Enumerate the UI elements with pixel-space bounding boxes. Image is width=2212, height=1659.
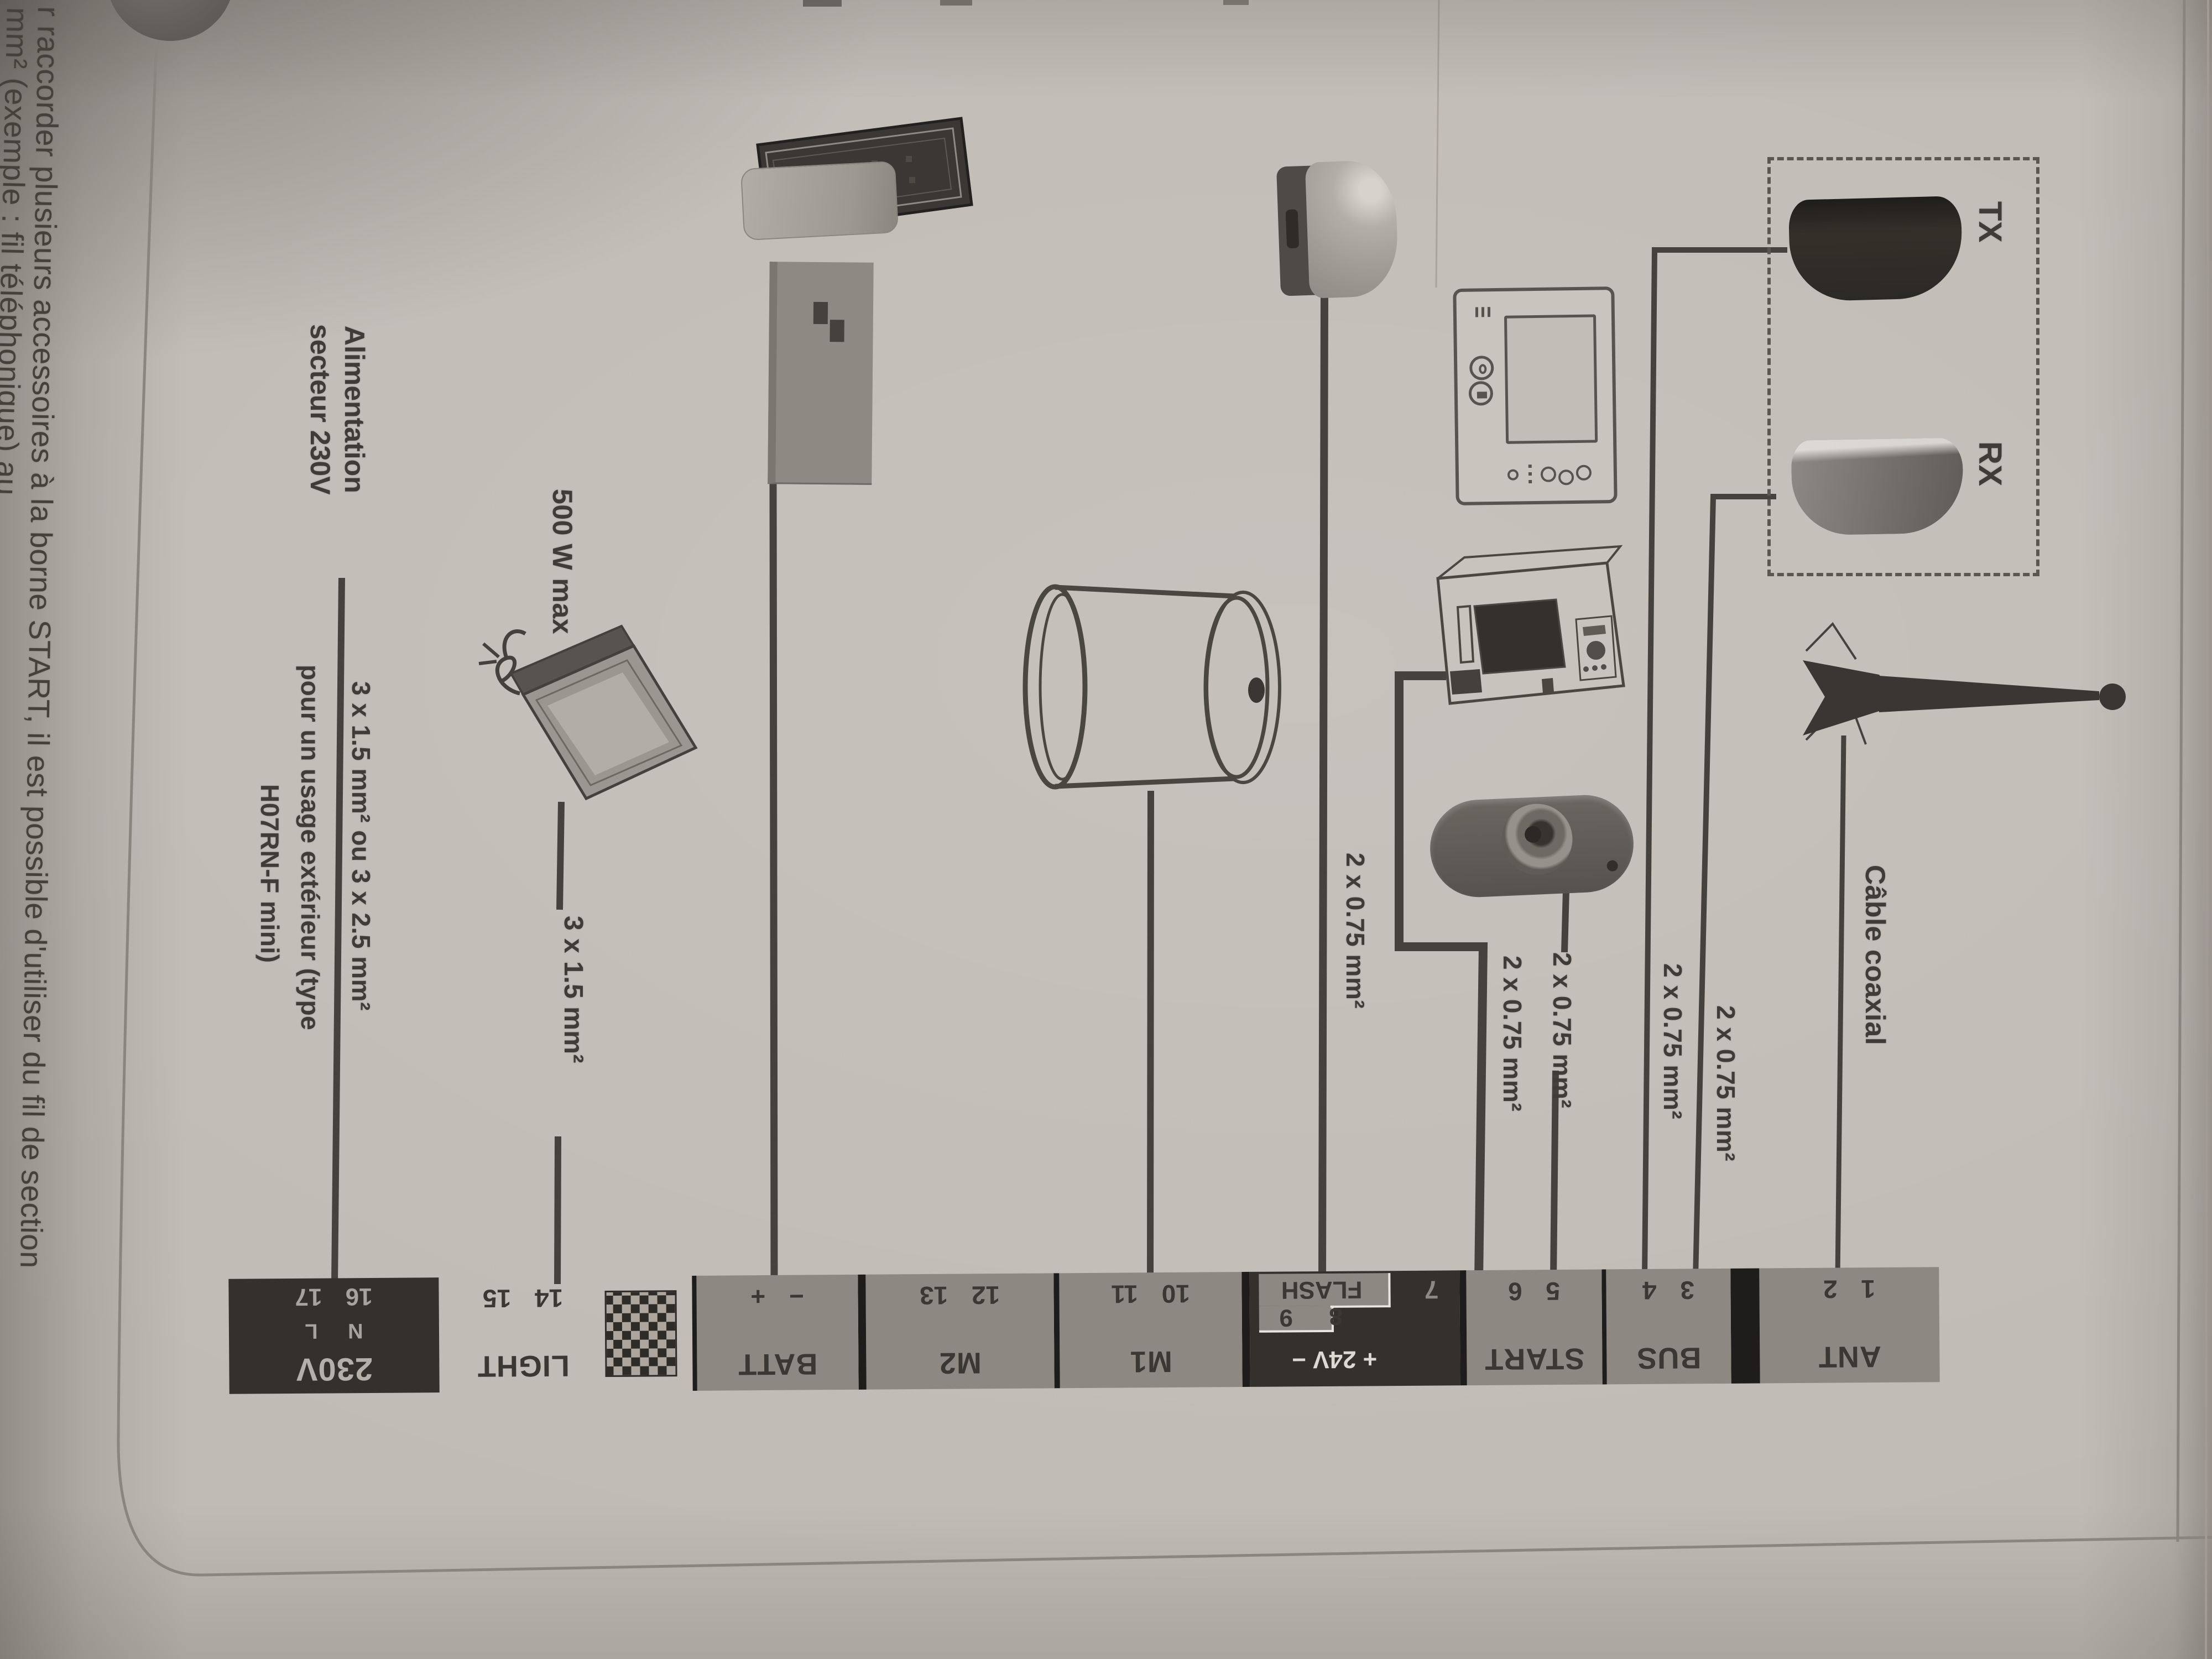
divider <box>1241 1272 1250 1387</box>
label-mains-gauge-1: 3 x 1.5 mm² ou 3 x 2.5 mm² <box>346 681 376 1011</box>
divider <box>1730 1268 1760 1383</box>
divider <box>858 1275 866 1390</box>
terminal-block-ant: ANT 1 2 <box>1759 1267 1939 1383</box>
remote-screen <box>1504 314 1598 444</box>
spacer <box>676 1276 692 1391</box>
reader-screw-hole <box>1606 860 1618 872</box>
label-mains-feed: Alimentation secteur 230V <box>303 324 372 495</box>
divider <box>1459 1270 1467 1385</box>
wire-intercom-start <box>1399 676 1483 1280</box>
label-gauge-075-intercom: 2 x 0.75 mm² <box>1498 956 1527 1112</box>
wire-motor-m1 <box>1150 791 1151 1280</box>
photocell-tx-label: TX <box>1971 201 2008 243</box>
wire-coax-antenna <box>1838 735 1844 1277</box>
manual-page-photo: r raccorder plusieurs accessoires à la b… <box>0 0 2212 1659</box>
label-gauge-075-tx: 2 x 0.75 mm² <box>1658 963 1688 1119</box>
photocell-rx-label: RX <box>1971 441 2008 487</box>
page-edge-mark <box>940 0 972 6</box>
antenna-icon <box>1803 624 2126 744</box>
motor-cylinder-icon <box>1025 587 1280 787</box>
connector-icon <box>1558 469 1574 485</box>
terminal-9: 9 <box>1279 1303 1293 1331</box>
spacer <box>600 1276 605 1391</box>
aux-24v-label: + 24V − <box>1292 1345 1377 1373</box>
flash-dome-icon <box>1276 159 1399 299</box>
battery-box-logo <box>813 302 828 324</box>
label-gauge-15-light: 3 x 1.5 mm² <box>558 916 588 1063</box>
flood-light-icon <box>479 626 696 799</box>
spacer <box>439 1277 446 1392</box>
terminal-7: 7 <box>1425 1275 1439 1305</box>
small-dial-icon <box>1507 469 1519 480</box>
flash-label: FLASH <box>1281 1275 1363 1303</box>
terminal-8: 8 <box>1329 1302 1343 1330</box>
terminal-block-m1: M1 10 11 <box>1059 1272 1242 1388</box>
terminal-block-light: LIGHT 14 15 <box>445 1276 601 1392</box>
battery-box-icon <box>768 262 874 485</box>
battery-pack-icon <box>740 161 899 241</box>
intercom-monitor-icon <box>1438 546 1624 703</box>
label-mains-gauge-3: H07RN-F mini) <box>255 784 285 963</box>
divider <box>1601 1269 1606 1384</box>
vent-marks <box>1475 307 1491 317</box>
page-edge-mark <box>803 0 842 7</box>
label-lamp-power: 500 W max <box>546 489 578 634</box>
wire-flash-light <box>1322 293 1324 1280</box>
label-coax: Câble coaxial <box>1859 865 1891 1045</box>
label-gauge-075-badge: 2 x 0.75 mm² <box>1547 952 1577 1108</box>
wire-mains-230v <box>335 578 342 1284</box>
divider <box>1053 1273 1060 1388</box>
label-mains-gauge-2: pour un usage extérieur (type <box>295 665 325 1030</box>
lock-button-icon <box>1469 381 1494 406</box>
label-gauge-075-flash: 2 x 0.75 mm² <box>1340 853 1370 1009</box>
key-button-icon <box>1469 356 1494 380</box>
badge-reader-icon <box>1428 793 1635 899</box>
terminal-block-flash-24v: + 24V − 7 8 9 FLASH <box>1249 1270 1460 1387</box>
dot-cluster <box>1528 465 1532 487</box>
wire-battery <box>773 481 774 1282</box>
terminal-block-batt: BATT − + <box>692 1275 858 1391</box>
datamatrix-code <box>604 1276 677 1391</box>
label-gauge-075-rx: 2 x 0.75 mm² <box>1711 1005 1741 1161</box>
connector-icon <box>1541 466 1556 482</box>
terminal-block-m2: M2 12 13 <box>865 1273 1054 1389</box>
terminal-block-start: START 5 6 <box>1466 1269 1602 1385</box>
remote-control-icon <box>1453 286 1617 505</box>
battery-box-logo <box>830 320 844 342</box>
connector-icon <box>1576 465 1592 481</box>
terminal-block-bus: BUS 3 4 <box>1606 1269 1731 1385</box>
page-edge-mark <box>1223 0 1249 5</box>
terminal-strip: ANT 1 2 BUS 3 4 START 5 6 + 24V − <box>228 1267 1939 1394</box>
terminal-block-230v: 230V N L 16 17 <box>228 1277 439 1394</box>
